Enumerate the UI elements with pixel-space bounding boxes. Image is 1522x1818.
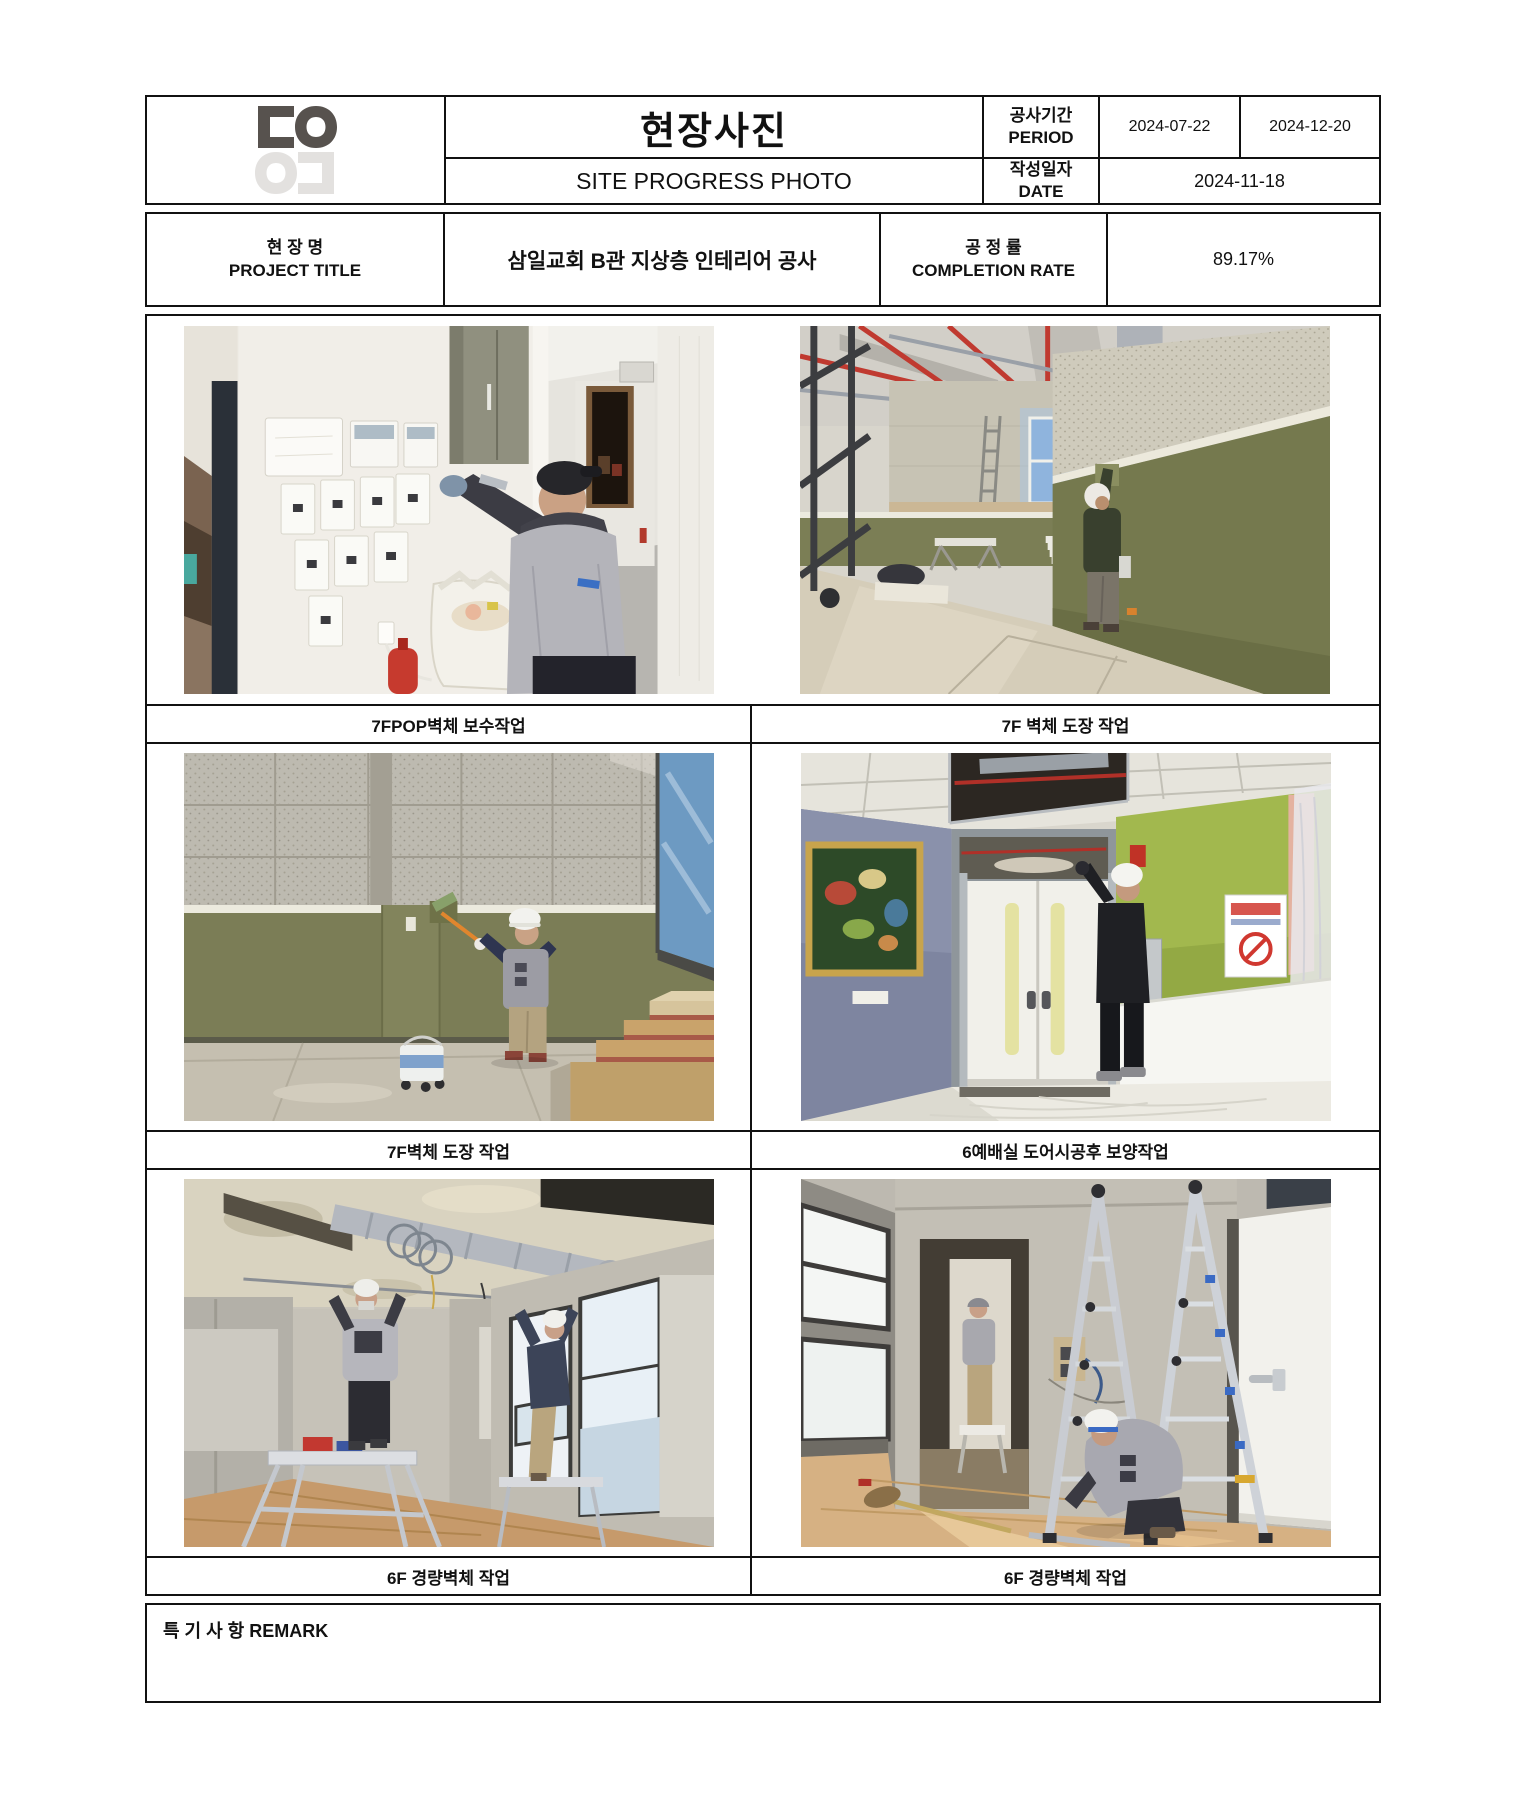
doc-title: 현장사진 [444, 97, 982, 157]
photo-caption-4: 6예배실 도어시공후 보양작업 [750, 1130, 1379, 1168]
report-date-label-ko: 작성일자 [1010, 160, 1073, 179]
report-date-label: 작성일자 DATE [982, 157, 1098, 203]
completion-rate-value: 89.17% [1106, 214, 1379, 305]
company-logo [147, 97, 444, 203]
project-title-label: 현 장 명 PROJECT TITLE [147, 214, 443, 305]
period-label: 공사기간 PERIOD [982, 97, 1098, 157]
photo-cell-6 [750, 1168, 1379, 1556]
report-date-value: 2024-11-18 [1098, 157, 1379, 203]
photo-caption-6: 6F 경량벽체 작업 [750, 1556, 1379, 1594]
project-title-label-en: PROJECT TITLE [229, 261, 361, 280]
company-logo-mark [236, 104, 356, 196]
report-header: 현장사진 SITE PROGRESS PHOTO 공사기간 PERIOD 202… [145, 95, 1381, 205]
photo-image-5 [184, 1179, 714, 1547]
photo-image-4 [801, 753, 1331, 1121]
completion-rate-label: 공 정 률 COMPLETION RATE [879, 214, 1106, 305]
remark-section: 특 기 사 항 REMARK [145, 1603, 1381, 1703]
photo-image-3 [184, 753, 714, 1121]
period-label-en: PERIOD [1008, 128, 1073, 147]
photo-grid: 7FPOP벽체 보수작업 7F 벽체 도장 작업 [145, 314, 1381, 1596]
project-info-row: 현 장 명 PROJECT TITLE 삼일교회 B관 지상층 인테리어 공사 … [145, 212, 1381, 307]
photo-image-1 [184, 326, 714, 694]
photo-cell-1 [147, 316, 750, 704]
photo-caption-2: 7F 벽체 도장 작업 [750, 704, 1379, 742]
photo-image-2 [800, 326, 1330, 694]
remark-label: 특 기 사 항 REMARK [163, 1617, 1363, 1643]
project-title: 삼일교회 B관 지상층 인테리어 공사 [443, 214, 879, 305]
photo-cell-3 [147, 742, 750, 1130]
report-date-label-en: DATE [1018, 182, 1063, 201]
doc-subtitle: SITE PROGRESS PHOTO [444, 157, 982, 203]
completion-rate-label-en: COMPLETION RATE [912, 261, 1075, 280]
period-start-date: 2024-07-22 [1098, 97, 1239, 157]
photo-cell-4 [750, 742, 1379, 1130]
period-label-ko: 공사기간 [1010, 106, 1073, 125]
photo-cell-5 [147, 1168, 750, 1556]
photo-cell-2 [750, 316, 1379, 704]
site-progress-report: 현장사진 SITE PROGRESS PHOTO 공사기간 PERIOD 202… [145, 95, 1381, 1703]
completion-rate-label-ko: 공 정 률 [965, 238, 1021, 257]
photo-caption-1: 7FPOP벽체 보수작업 [147, 704, 750, 742]
project-title-label-ko: 현 장 명 [267, 238, 323, 257]
photo-caption-5: 6F 경량벽체 작업 [147, 1556, 750, 1594]
period-end-date: 2024-12-20 [1239, 97, 1379, 157]
photo-image-6 [801, 1179, 1331, 1547]
photo-caption-3: 7F벽체 도장 작업 [147, 1130, 750, 1168]
